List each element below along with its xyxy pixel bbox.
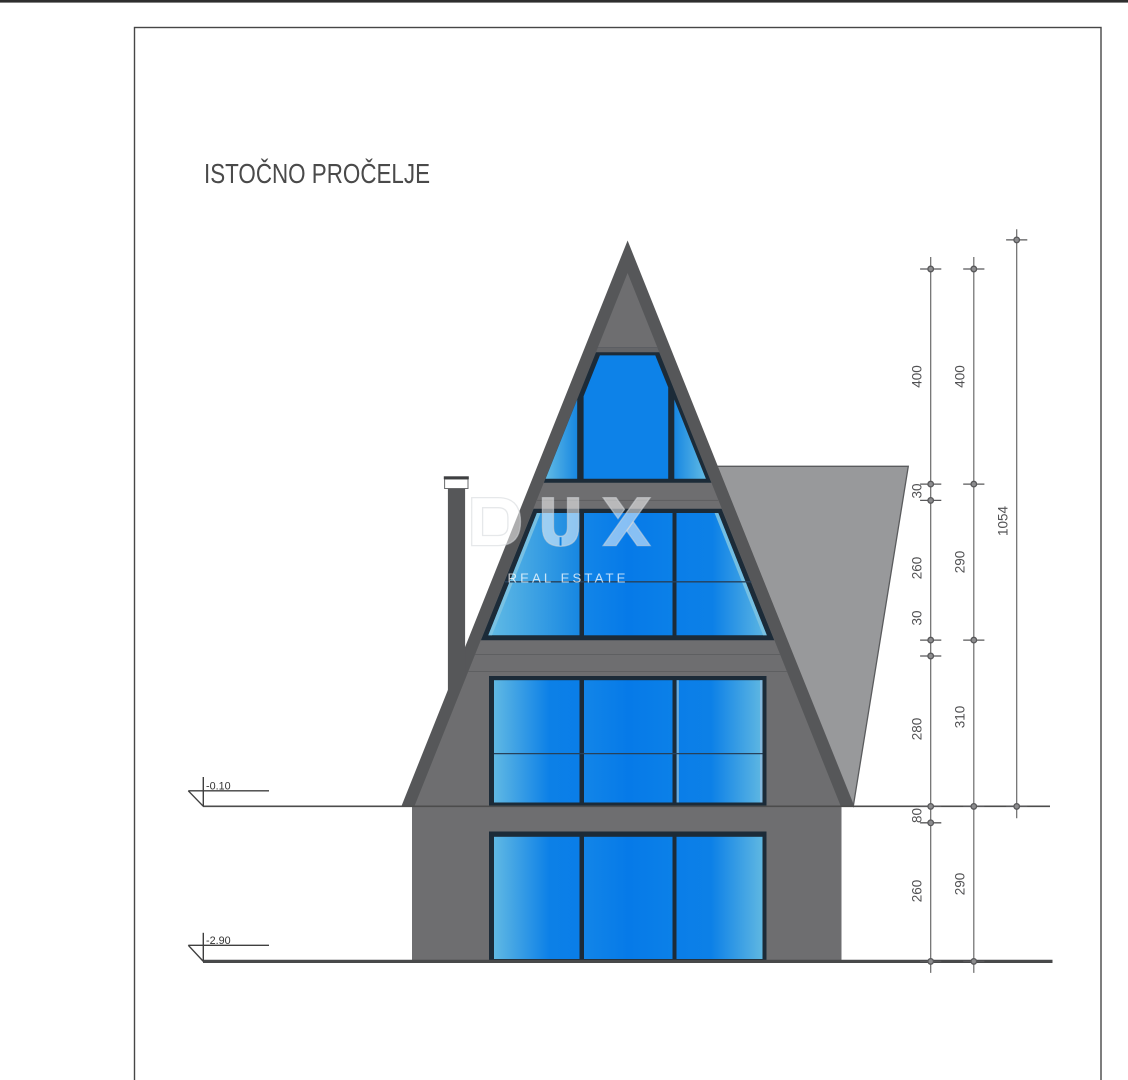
svg-text:280: 280 [910,718,925,741]
svg-text:260: 260 [910,557,925,580]
svg-text:30: 30 [910,483,925,498]
svg-text:290: 290 [953,551,968,574]
svg-text:80: 80 [910,808,925,823]
svg-text:400: 400 [910,365,925,388]
svg-text:310: 310 [953,706,968,729]
svg-text:290: 290 [953,873,968,896]
svg-text:-0.10: -0.10 [206,781,231,793]
svg-text:ISTOČNO PROČELJE: ISTOČNO PROČELJE [204,158,430,189]
svg-text:-2.90: -2.90 [206,935,231,947]
svg-text:REAL ESTATE: REAL ESTATE [508,571,629,586]
svg-text:260: 260 [910,880,925,903]
svg-text:400: 400 [953,365,968,388]
svg-text:1054: 1054 [996,505,1011,536]
svg-text:30: 30 [910,610,925,625]
